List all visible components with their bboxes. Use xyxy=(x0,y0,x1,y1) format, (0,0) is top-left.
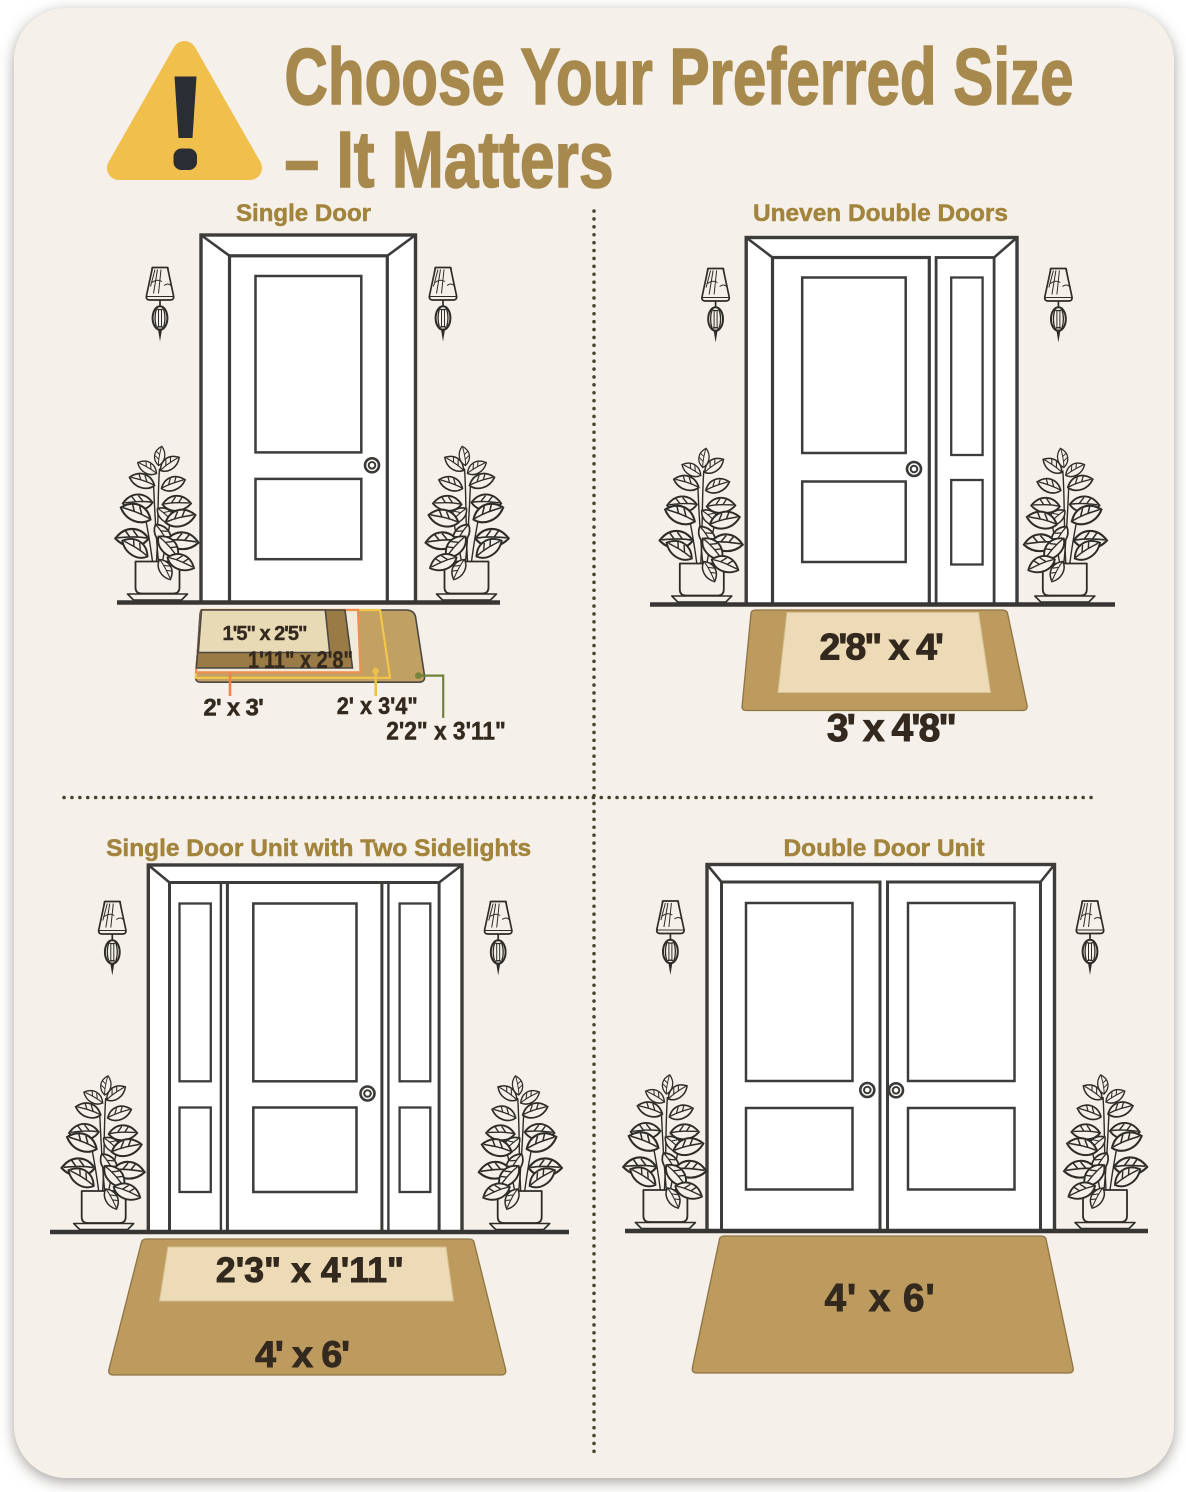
svg-text:2'3" x 4'11": 2'3" x 4'11" xyxy=(216,1250,404,1290)
svg-text:Single Door: Single Door xyxy=(236,200,371,227)
svg-text:4' x 6': 4' x 6' xyxy=(255,1333,350,1375)
svg-text:– It Matters: – It Matters xyxy=(285,115,614,204)
svg-text:Double Door Unit: Double Door Unit xyxy=(784,835,985,862)
svg-text:2'2" x 3'11": 2'2" x 3'11" xyxy=(386,718,506,746)
svg-text:Choose Your Preferred Size: Choose Your Preferred Size xyxy=(285,32,1074,121)
svg-text:2' x 3'4": 2' x 3'4" xyxy=(337,693,418,720)
svg-text:3' x 4'8": 3' x 4'8" xyxy=(827,707,957,750)
svg-text:1'5" x 2'5": 1'5" x 2'5" xyxy=(223,623,308,645)
svg-text:Single Door Unit with Two Side: Single Door Unit with Two Sidelights xyxy=(106,835,531,862)
svg-text:Uneven Double Doors: Uneven Double Doors xyxy=(753,200,1008,227)
svg-text:4' x 6': 4' x 6' xyxy=(825,1277,935,1320)
svg-text:2'8" x 4': 2'8" x 4' xyxy=(819,626,944,668)
svg-text:1'11" x 2'8": 1'11" x 2'8" xyxy=(248,647,353,674)
svg-text:2' x 3': 2' x 3' xyxy=(203,695,264,722)
